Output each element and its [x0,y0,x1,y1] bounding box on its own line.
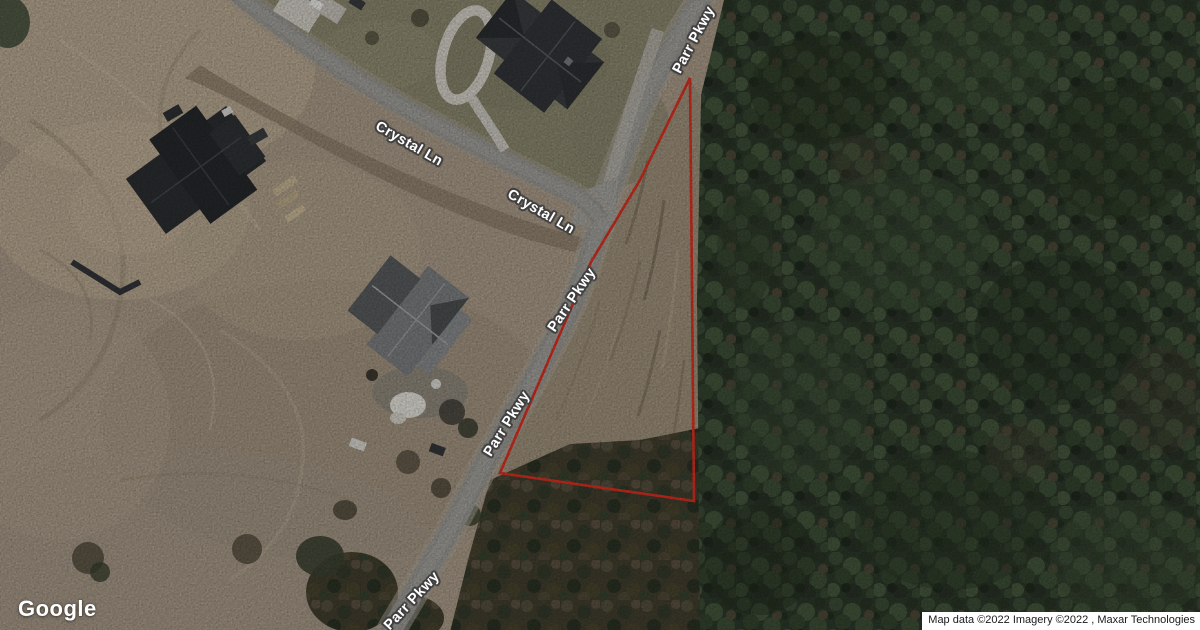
map-attribution: Map data ©2022 Imagery ©2022 , Maxar Tec… [922,612,1200,630]
image-grain [0,0,1200,630]
satellite-map[interactable]: Crystal Ln Crystal Ln Parr Pkwy Parr Pkw… [0,0,1200,630]
google-logo[interactable]: Google [18,596,97,622]
satellite-imagery [0,0,1200,630]
